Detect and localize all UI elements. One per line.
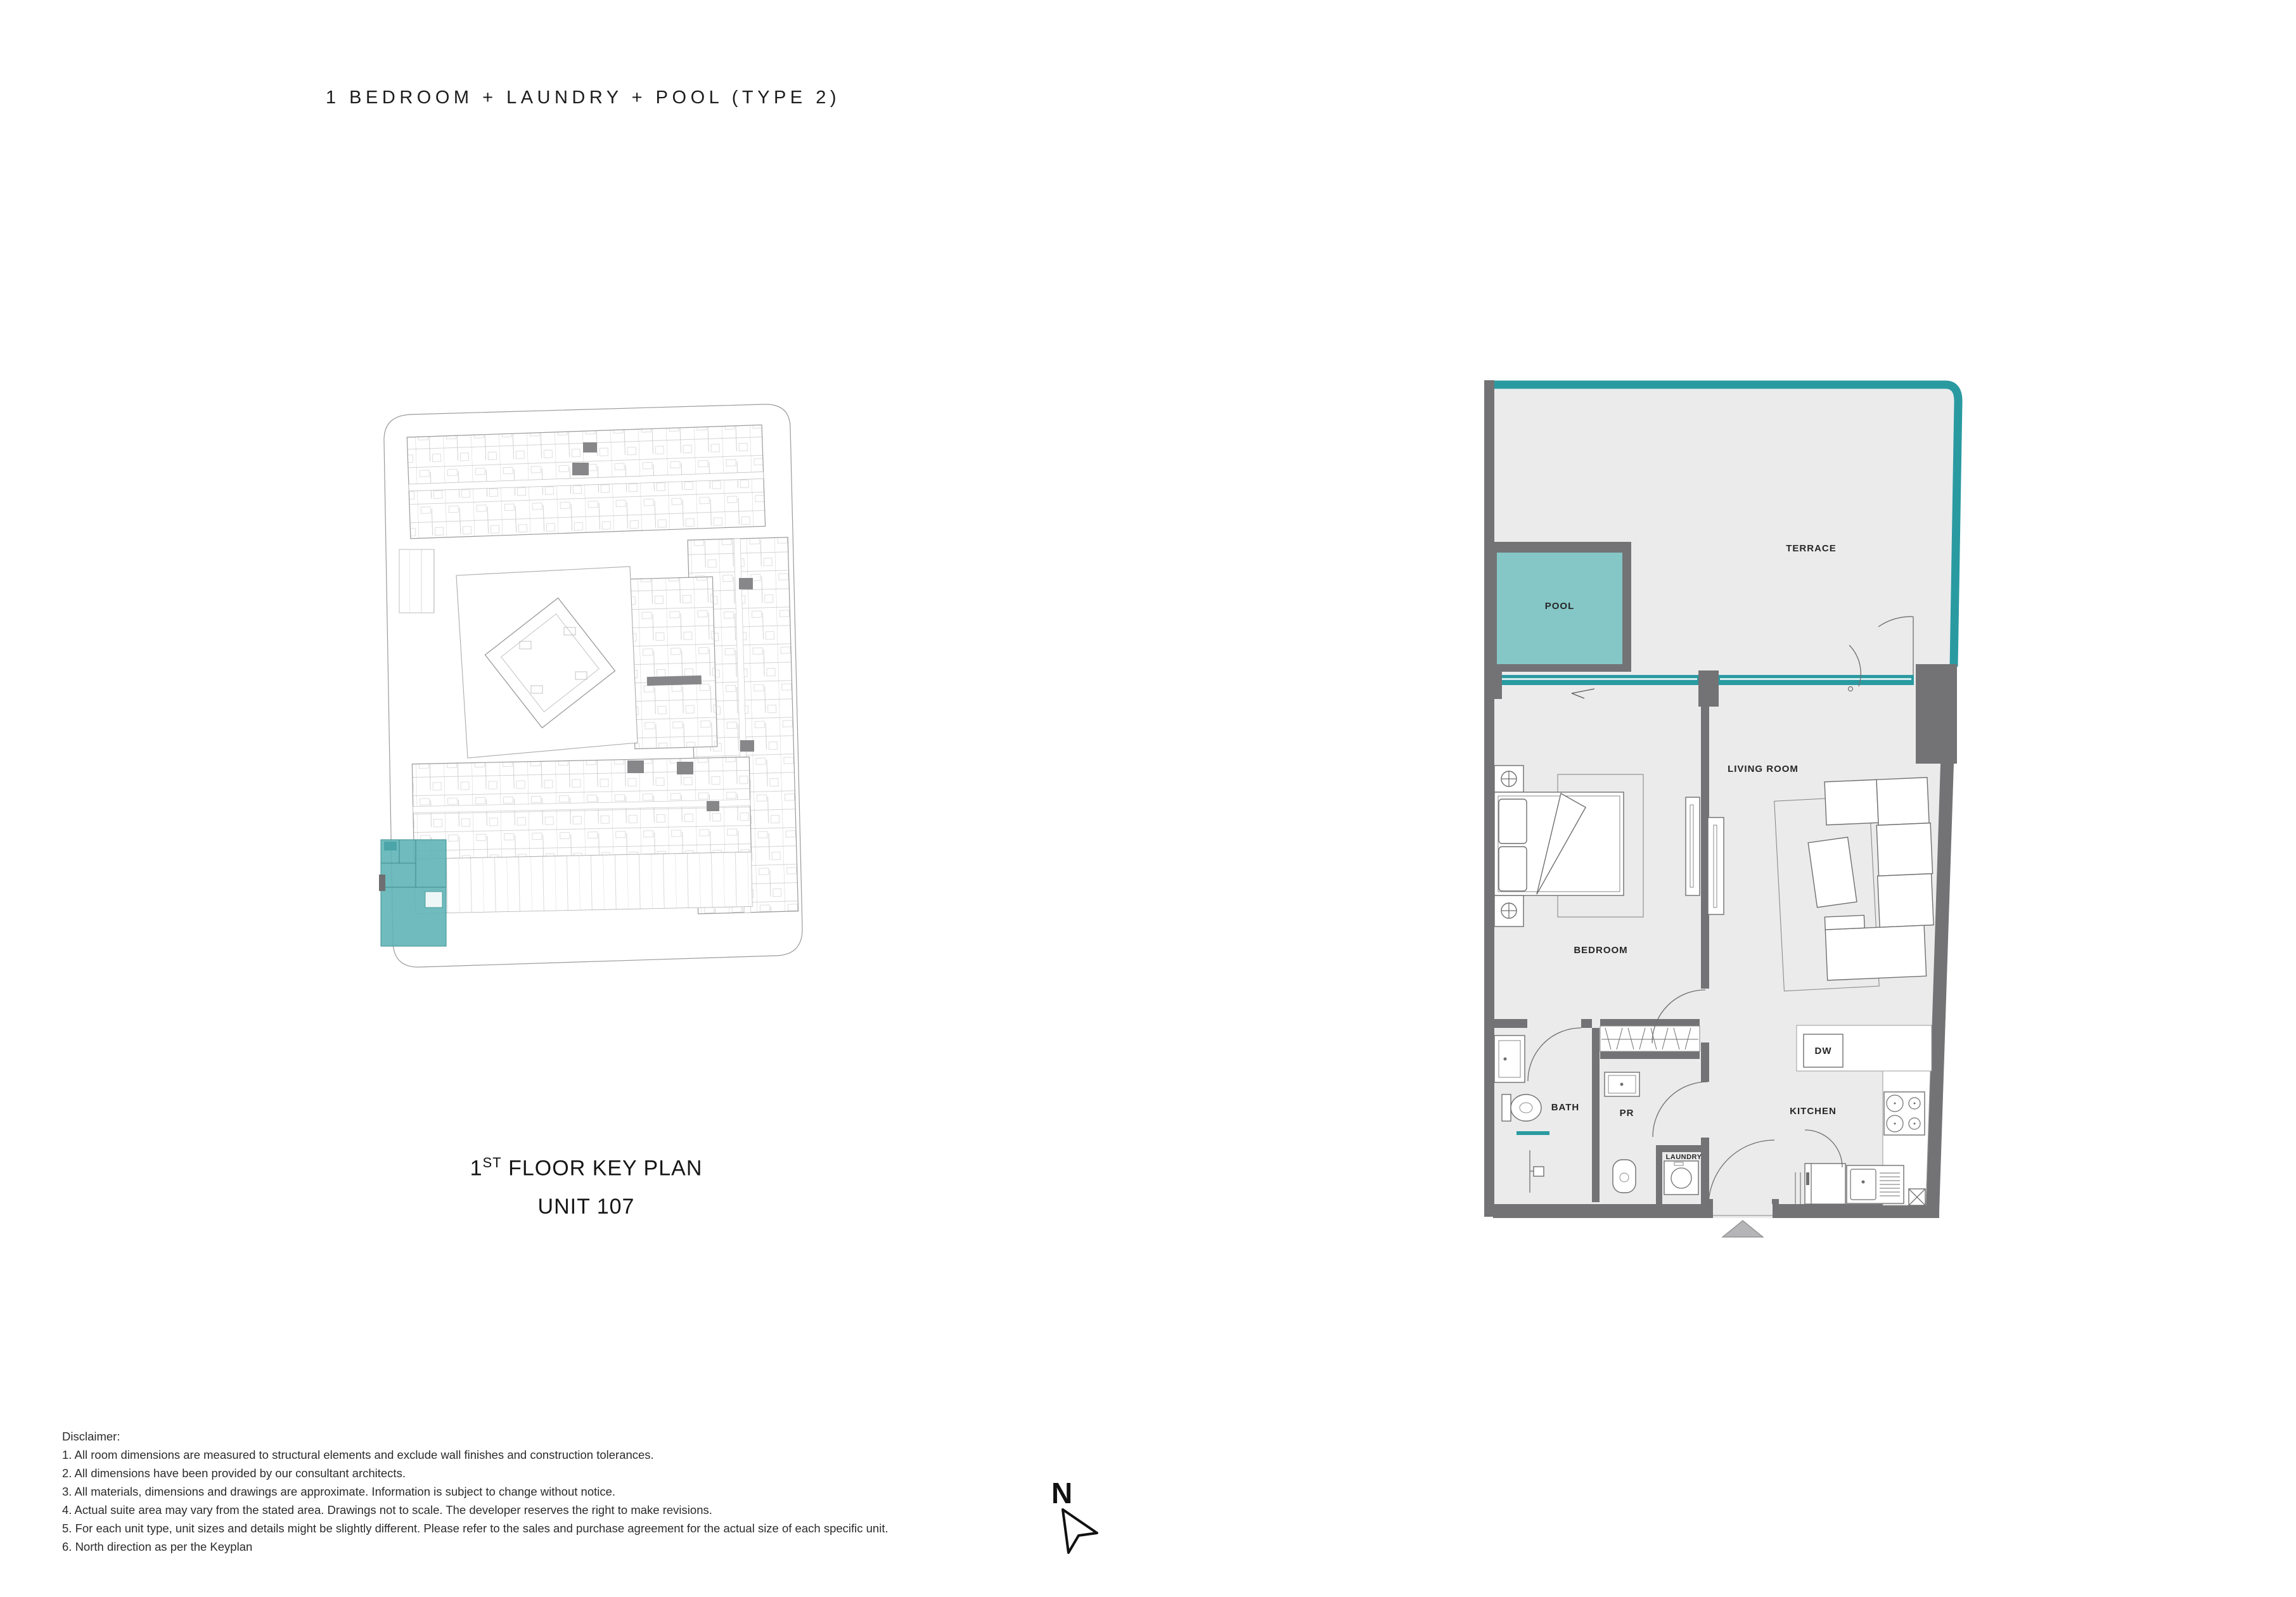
- wardrobe: [1600, 1026, 1700, 1051]
- room-label-bedroom: BEDROOM: [1574, 945, 1627, 956]
- disclaimer-item: 6. North direction as per the Keyplan: [62, 1537, 888, 1556]
- fridge: [1805, 1164, 1845, 1204]
- shower-screen: [1517, 1131, 1549, 1135]
- north-indicator: N: [1042, 1474, 1125, 1563]
- kitchen-sink: [1847, 1165, 1904, 1203]
- laundry-fixtures: [1664, 1161, 1698, 1195]
- north-label: N: [1051, 1477, 1072, 1510]
- floor-plan-sheet: 1 BEDROOM + LAUNDRY + POOL (TYPE 2): [0, 0, 2296, 1597]
- disclaimer-item: 2. All dimensions have been provided by …: [62, 1464, 888, 1482]
- room-label-kitchen: KITCHEN: [1790, 1106, 1837, 1117]
- key-plan-highlighted-unit: [379, 840, 446, 946]
- entry-arrow: [1722, 1221, 1763, 1237]
- room-label-pool: POOL: [1545, 601, 1575, 612]
- disclaimer-item: 1. All room dimensions are measured to s…: [62, 1446, 888, 1464]
- room-label-living-room: LIVING ROOM: [1728, 764, 1799, 774]
- room-label-dishwasher: DW: [1815, 1046, 1832, 1056]
- disclaimer-heading: Disclaimer:: [62, 1427, 888, 1446]
- stove: [1884, 1092, 1925, 1135]
- shaft: [1909, 1189, 1925, 1205]
- sliding-panel: [1708, 818, 1724, 914]
- key-plan-amenity-block: [630, 577, 717, 749]
- room-label-bath: BATH: [1551, 1102, 1580, 1113]
- key-plan-left-block: [399, 549, 434, 613]
- sliding-panel: [1686, 797, 1700, 895]
- unit-floor-plan: TERRACE POOL LIVING ROOM BEDROOM BATH PR…: [1477, 355, 2034, 1293]
- disclaimer: Disclaimer: 1. All room dimensions are m…: [62, 1427, 888, 1556]
- pr-toilet: [1613, 1160, 1636, 1193]
- room-label-terrace: TERRACE: [1786, 543, 1837, 554]
- floor-caption: 1ST FLOOR KEY PLAN: [361, 1155, 811, 1181]
- disclaimer-item: 4. Actual suite area may vary from the s…: [62, 1501, 888, 1519]
- key-plan-courtyard: [456, 567, 638, 758]
- key-plan-top-wing: [407, 425, 765, 538]
- key-plan: [361, 388, 811, 979]
- key-plan-bottom-wing: [412, 757, 752, 913]
- room-label-pr: PR: [1620, 1108, 1634, 1119]
- washing-machine: [1664, 1161, 1698, 1195]
- north-arrow-icon: [1063, 1510, 1097, 1553]
- disclaimer-item: 5. For each unit type, unit sizes and de…: [62, 1519, 888, 1537]
- room-label-laundry: LAUNDRY: [1666, 1153, 1702, 1161]
- bed: [1494, 792, 1624, 895]
- unit-caption: UNIT 107: [361, 1195, 811, 1219]
- disclaimer-item: 3. All materials, dimensions and drawing…: [62, 1482, 888, 1501]
- key-plan-caption: 1ST FLOOR KEY PLAN UNIT 107: [361, 1155, 811, 1219]
- toilet: [1502, 1094, 1541, 1121]
- coffee-table: [1808, 837, 1857, 908]
- page-title: 1 BEDROOM + LAUNDRY + POOL (TYPE 2): [326, 87, 840, 108]
